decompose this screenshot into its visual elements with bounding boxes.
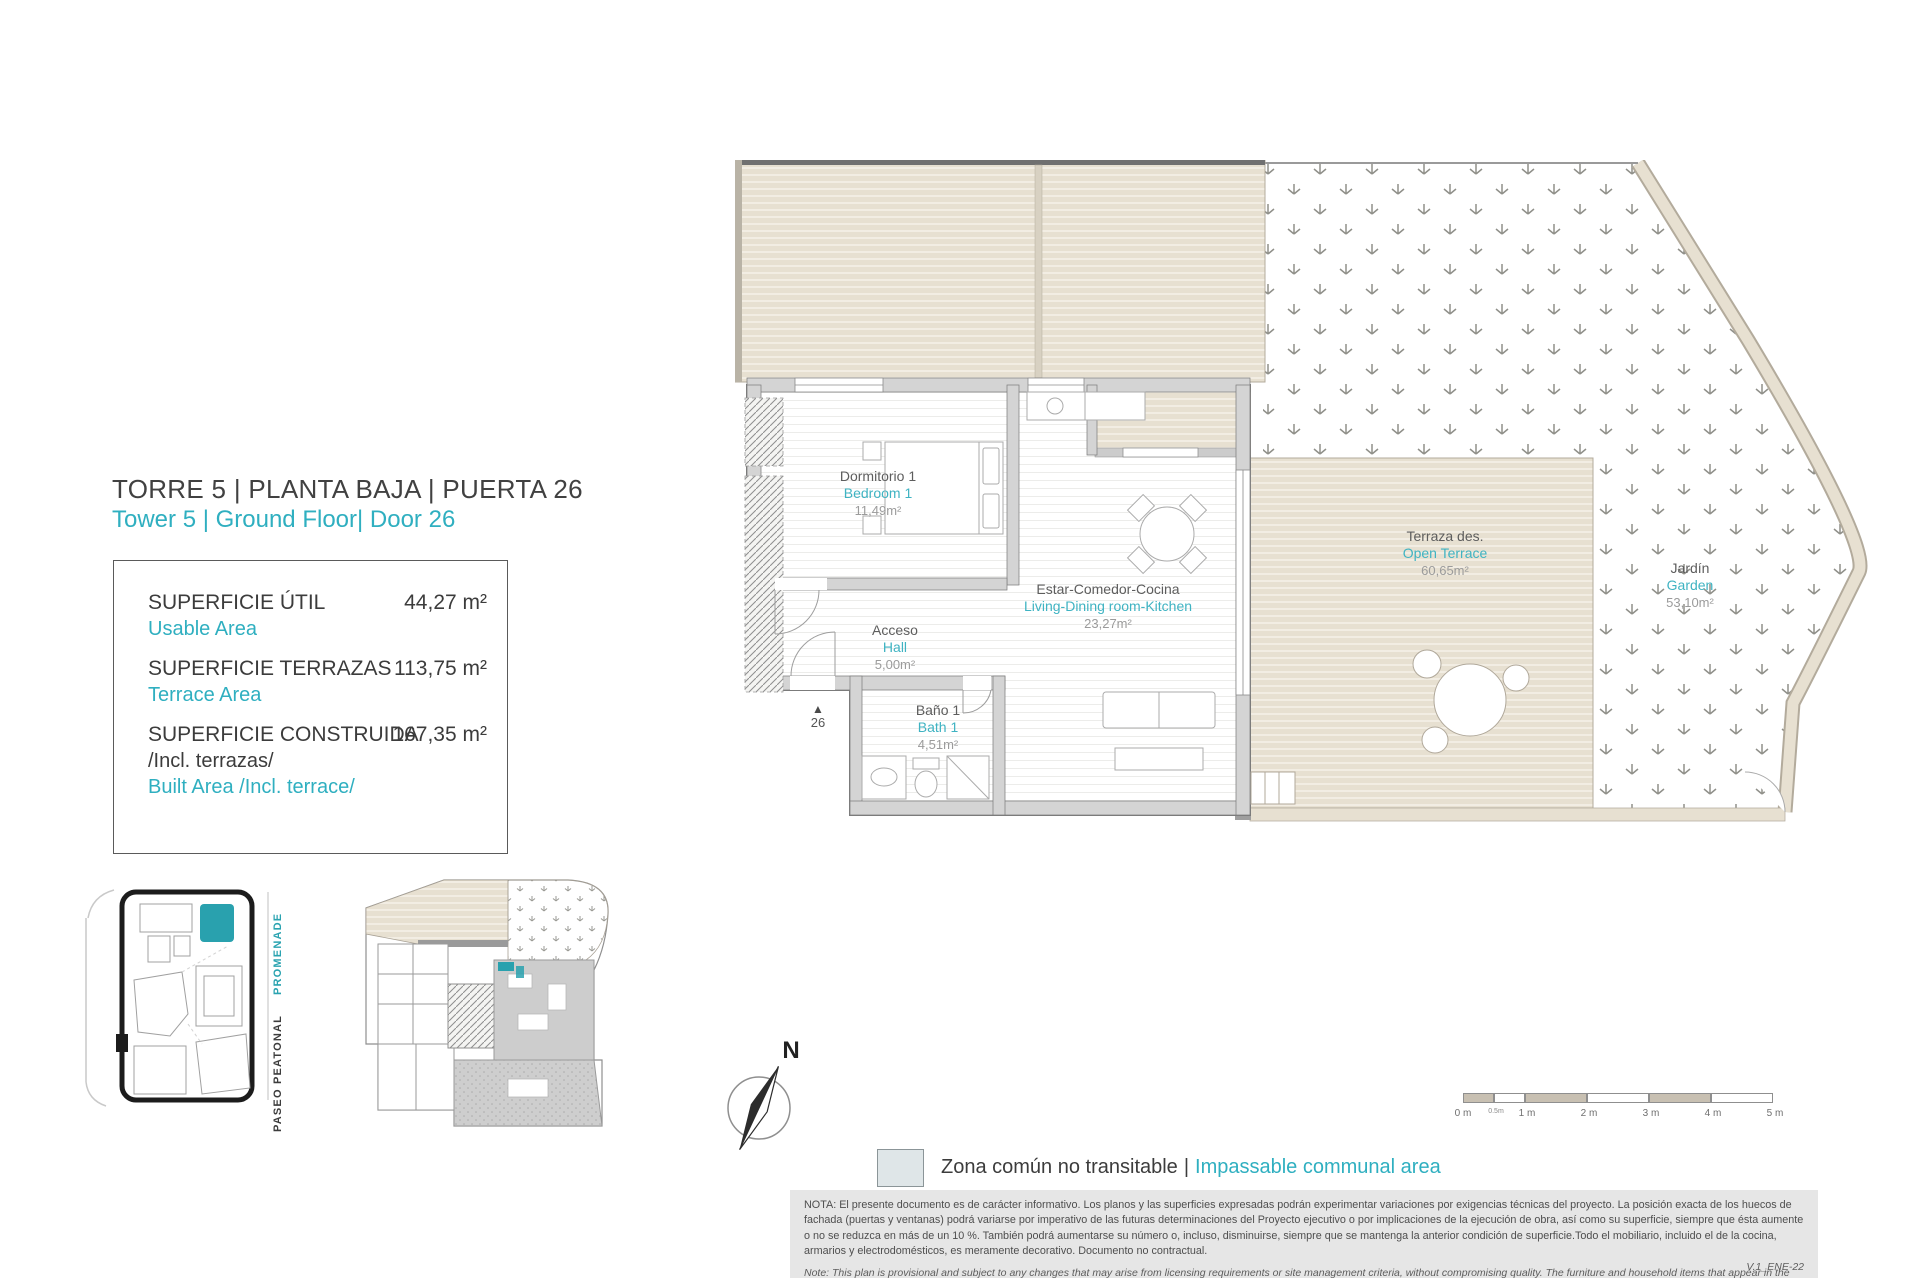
- scale-label: 1 m: [1519, 1108, 1536, 1119]
- version-label: V.1_ENE-22: [1746, 1261, 1804, 1273]
- room-area: 60,65m²: [1403, 562, 1488, 579]
- plate-rooms: [378, 944, 454, 1110]
- legend-label-en: Impassable communal area: [1195, 1156, 1441, 1178]
- room-name-es: Estar-Comedor-Cocina: [1024, 581, 1192, 598]
- communal-roof-top-wall: [735, 160, 1265, 165]
- room-area: 53,10m²: [1666, 594, 1714, 611]
- plate-stair-core: [448, 984, 494, 1048]
- scale-segment: [1711, 1093, 1773, 1103]
- scale-label: 0.5m: [1488, 1108, 1504, 1115]
- scale-label: 0 m: [1455, 1108, 1472, 1119]
- bath-fixtures: [862, 756, 989, 799]
- summary-note: /Incl. terrazas/: [148, 750, 487, 773]
- compass-needle: [731, 1063, 786, 1154]
- scale-label: 3 m: [1643, 1108, 1660, 1119]
- scale-segment: [1463, 1093, 1494, 1103]
- room-name-en: Bedroom 1: [840, 485, 916, 502]
- summary-label: SUPERFICIE TERRAZAS: [148, 657, 392, 680]
- scale-segment: [1587, 1093, 1649, 1103]
- floor-plate-key-map: [358, 874, 650, 1138]
- room-label-living: Estar-Comedor-Cocina Living-Dining room-…: [1024, 581, 1192, 632]
- page-title-translation: Tower 5 | Ground Floor| Door 26: [112, 506, 455, 534]
- scale-label: 4 m: [1705, 1108, 1722, 1119]
- scale-segment: [1494, 1093, 1525, 1103]
- legend-label-es: Zona común no transitable: [941, 1156, 1178, 1178]
- room-name-es: Baño 1: [916, 702, 960, 719]
- legend-swatch-impassable-area: [877, 1149, 924, 1187]
- summary-label-en: Terrace Area: [148, 684, 487, 707]
- room-label-hall: Acceso Hall 5,00m²: [872, 622, 918, 673]
- site-boundary-notch: [116, 1034, 128, 1052]
- summary-label-en: Usable Area: [148, 618, 487, 641]
- terrace-bottom-strip: [1250, 808, 1785, 821]
- summary-row: SUPERFICIE ÚTIL 44,27 m² Usable Area: [148, 591, 487, 641]
- site-key-map: [78, 884, 292, 1136]
- terrace-area: [1250, 458, 1593, 808]
- street-label-promenade: PROMENADE: [272, 898, 284, 1010]
- summary-label-en: Built Area /Incl. terrace/: [148, 776, 487, 799]
- scale-segment: [1649, 1093, 1711, 1103]
- communal-roof-divider-wall: [1035, 165, 1042, 382]
- floor-plan-document: TORRE 5 | PLANTA BAJA | PUERTA 26 Tower …: [0, 0, 1920, 1280]
- hatched-wall-sections: [745, 398, 783, 692]
- disclaimer-notes: NOTA: El presente documento es de caráct…: [790, 1190, 1818, 1278]
- room-area: 23,27m²: [1024, 615, 1192, 632]
- highlighted-tower: [200, 904, 234, 942]
- room-area: 11,49m²: [840, 502, 916, 519]
- scale-label: 5 m: [1767, 1108, 1784, 1119]
- communal-roof-area: [735, 160, 1265, 382]
- room-area: 5,00m²: [872, 656, 918, 673]
- entrance-marker: ▲ 26: [811, 702, 825, 730]
- legend-separator: |: [1178, 1156, 1195, 1178]
- note-english: Note: This plan is provisional and subje…: [804, 1266, 1804, 1278]
- summary-row: SUPERFICIE TERRAZAS 113,75 m² Terrace Ar…: [148, 657, 487, 707]
- scale-label: 2 m: [1581, 1108, 1598, 1119]
- summary-value: 44,27 m²: [404, 591, 487, 615]
- communal-roof-left-edge: [735, 160, 742, 382]
- summary-label: SUPERFICIE ÚTIL: [148, 591, 325, 614]
- room-label-terrace: Terraza des. Open Terrace 60,65m²: [1403, 528, 1488, 579]
- kitchen-counter: [1027, 392, 1145, 420]
- entrance-arrow-icon: ▲: [811, 702, 825, 716]
- page-title: TORRE 5 | PLANTA BAJA | PUERTA 26: [112, 474, 583, 505]
- room-label-garden: Jardín Garden 53,10m²: [1666, 560, 1714, 611]
- room-name-en: Living-Dining room-Kitchen: [1024, 598, 1192, 615]
- room-name-en: Hall: [872, 639, 918, 656]
- room-label-bath: Baño 1 Bath 1 4,51m²: [916, 702, 960, 753]
- room-name-es: Terraza des.: [1403, 528, 1488, 545]
- room-name-en: Open Terrace: [1403, 545, 1488, 562]
- scale-segment: [1525, 1093, 1587, 1103]
- street-label-paseo-peatonal: PASEO PEATONAL: [272, 1012, 284, 1134]
- entrance-number: 26: [811, 716, 825, 730]
- summary-row: SUPERFICIE CONSTRUIDA 167,35 m² /Incl. t…: [148, 723, 487, 799]
- summary-value: 113,75 m²: [394, 657, 487, 681]
- room-label-bedroom: Dormitorio 1 Bedroom 1 11,49m²: [840, 468, 916, 519]
- kitchen-window: [1123, 448, 1198, 457]
- room-name-es: Acceso: [872, 622, 918, 639]
- plate-highlight-a: [498, 962, 514, 971]
- room-name-en: Garden: [1666, 577, 1714, 594]
- plate-unit-bottom-furniture: [508, 1079, 548, 1097]
- road-lines: [86, 890, 114, 1106]
- summary-value: 167,35 m²: [392, 723, 487, 747]
- summary-label: SUPERFICIE CONSTRUIDA: [148, 723, 419, 746]
- note-spanish: NOTA: El presente documento es de caráct…: [804, 1198, 1804, 1259]
- compass: N: [715, 1032, 825, 1157]
- room-area: 4,51m²: [916, 736, 960, 753]
- plate-garden-dotted: [508, 880, 608, 960]
- plate-roof-striped: [366, 880, 508, 944]
- room-name-es: Jardín: [1666, 560, 1714, 577]
- plate-highlight-b: [516, 966, 524, 978]
- surface-summary-box: SUPERFICIE ÚTIL 44,27 m² Usable Area SUP…: [113, 560, 508, 854]
- legend-text: Zona común no transitable|Impassable com…: [941, 1156, 1441, 1179]
- compass-north-label: N: [782, 1037, 799, 1064]
- room-name-en: Bath 1: [916, 719, 960, 736]
- room-name-es: Dormitorio 1: [840, 468, 916, 485]
